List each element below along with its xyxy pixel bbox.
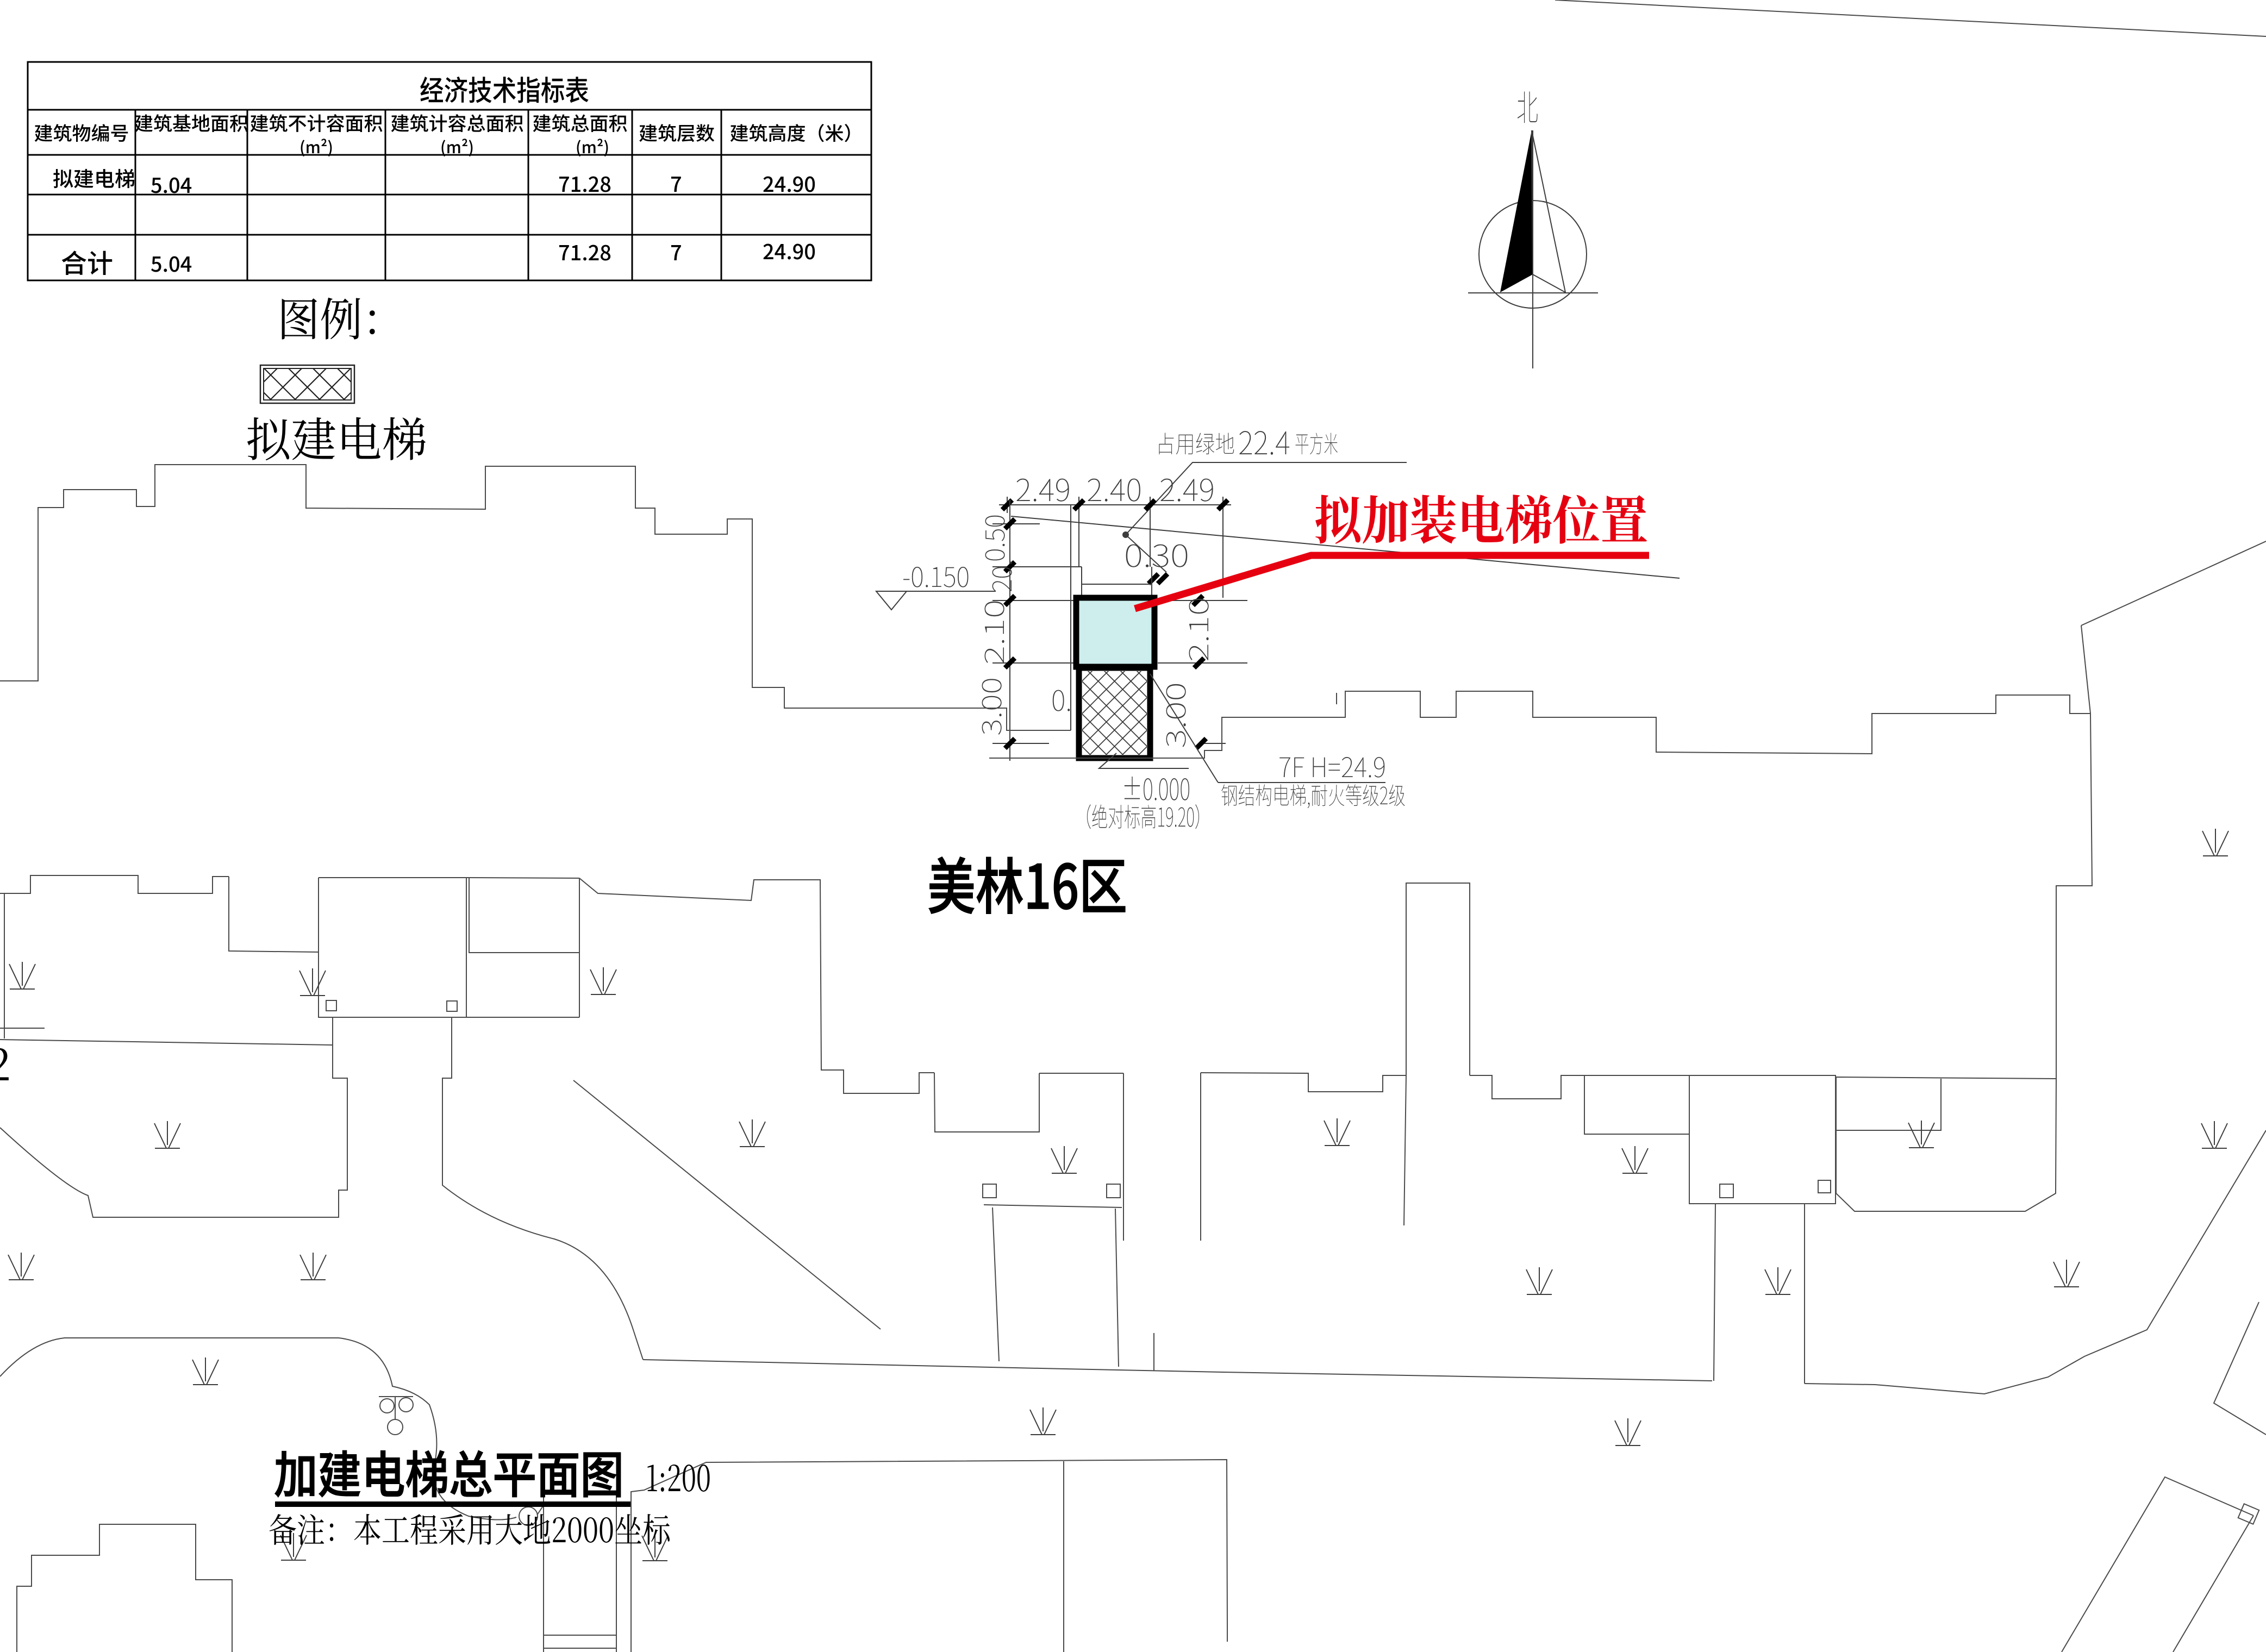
svg-text:71.28: 71.28 — [558, 168, 611, 198]
svg-text:美林16区: 美林16区 — [927, 838, 1127, 927]
svg-text:备注：本工程采用大地2000坐标: 备注：本工程采用大地2000坐标 — [269, 1504, 671, 1552]
svg-text:建筑高度（米）: 建筑高度（米） — [729, 118, 863, 146]
svg-text:3.00: 3.00 — [971, 677, 1009, 736]
svg-text:建筑基地面积: 建筑基地面积 — [134, 109, 248, 136]
svg-text:建筑总面积: 建筑总面积 — [532, 109, 627, 136]
svg-text:拟建电梯: 拟建电梯 — [246, 403, 427, 470]
svg-text:1:200: 1:200 — [646, 1450, 711, 1501]
svg-text:2: 2 — [0, 1030, 11, 1093]
svg-text:0.: 0. — [1051, 678, 1072, 719]
svg-text:拟建电梯: 拟建电梯 — [53, 162, 135, 192]
svg-text:22.4: 22.4 — [1238, 418, 1290, 464]
svg-text:20.: 20. — [981, 560, 1019, 592]
svg-text:0.30: 0.30 — [1124, 532, 1189, 576]
svg-text:建筑计容总面积: 建筑计容总面积 — [390, 109, 523, 136]
svg-text:占用绿地: 占用绿地 — [1156, 425, 1235, 460]
svg-text:7: 7 — [670, 168, 682, 198]
svg-text:建筑层数: 建筑层数 — [639, 118, 715, 146]
svg-text:建筑不计容面积: 建筑不计容面积 — [249, 109, 383, 136]
svg-text:拟加装电梯位置: 拟加装电梯位置 — [1314, 480, 1648, 554]
svg-text:经济技术指标表: 经济技术指标表 — [420, 68, 589, 109]
svg-text:(m²): (m²) — [576, 134, 609, 158]
svg-text:2.40: 2.40 — [1087, 466, 1142, 510]
svg-text:2.10: 2.10 — [1178, 597, 1216, 662]
svg-text:建筑物编号: 建筑物编号 — [34, 118, 129, 146]
svg-text:(m²): (m²) — [440, 134, 474, 158]
svg-text:-0.150: -0.150 — [902, 556, 970, 595]
svg-text:2.10: 2.10 — [973, 599, 1012, 665]
svg-text:北: 北 — [1516, 79, 1538, 132]
svg-text:加建电梯总平面图: 加建电梯总平面图 — [274, 1435, 624, 1507]
svg-text:(m²): (m²) — [299, 134, 333, 158]
svg-text:钢结构电梯,耐火等级2级: 钢结构电梯,耐火等级2级 — [1221, 777, 1406, 811]
svg-text:合计: 合计 — [61, 242, 113, 280]
svg-text:2.49: 2.49 — [1159, 466, 1215, 510]
svg-text:5.04: 5.04 — [151, 248, 192, 278]
svg-text:图例：: 图例： — [277, 284, 405, 349]
svg-text:平方米: 平方米 — [1295, 425, 1338, 460]
svg-text:0.50: 0.50 — [974, 514, 1012, 562]
svg-text:71.28: 71.28 — [558, 236, 611, 266]
svg-text:3.00: 3.00 — [1155, 682, 1193, 748]
svg-text:2.49: 2.49 — [1015, 466, 1071, 510]
svg-text:5.04: 5.04 — [151, 169, 192, 199]
svg-text:24.90: 24.90 — [763, 235, 816, 265]
svg-text:24.90: 24.90 — [763, 168, 816, 198]
svg-text:7: 7 — [670, 236, 682, 266]
svg-text:（绝对标高19.20）: （绝对标高19.20） — [1075, 796, 1211, 834]
